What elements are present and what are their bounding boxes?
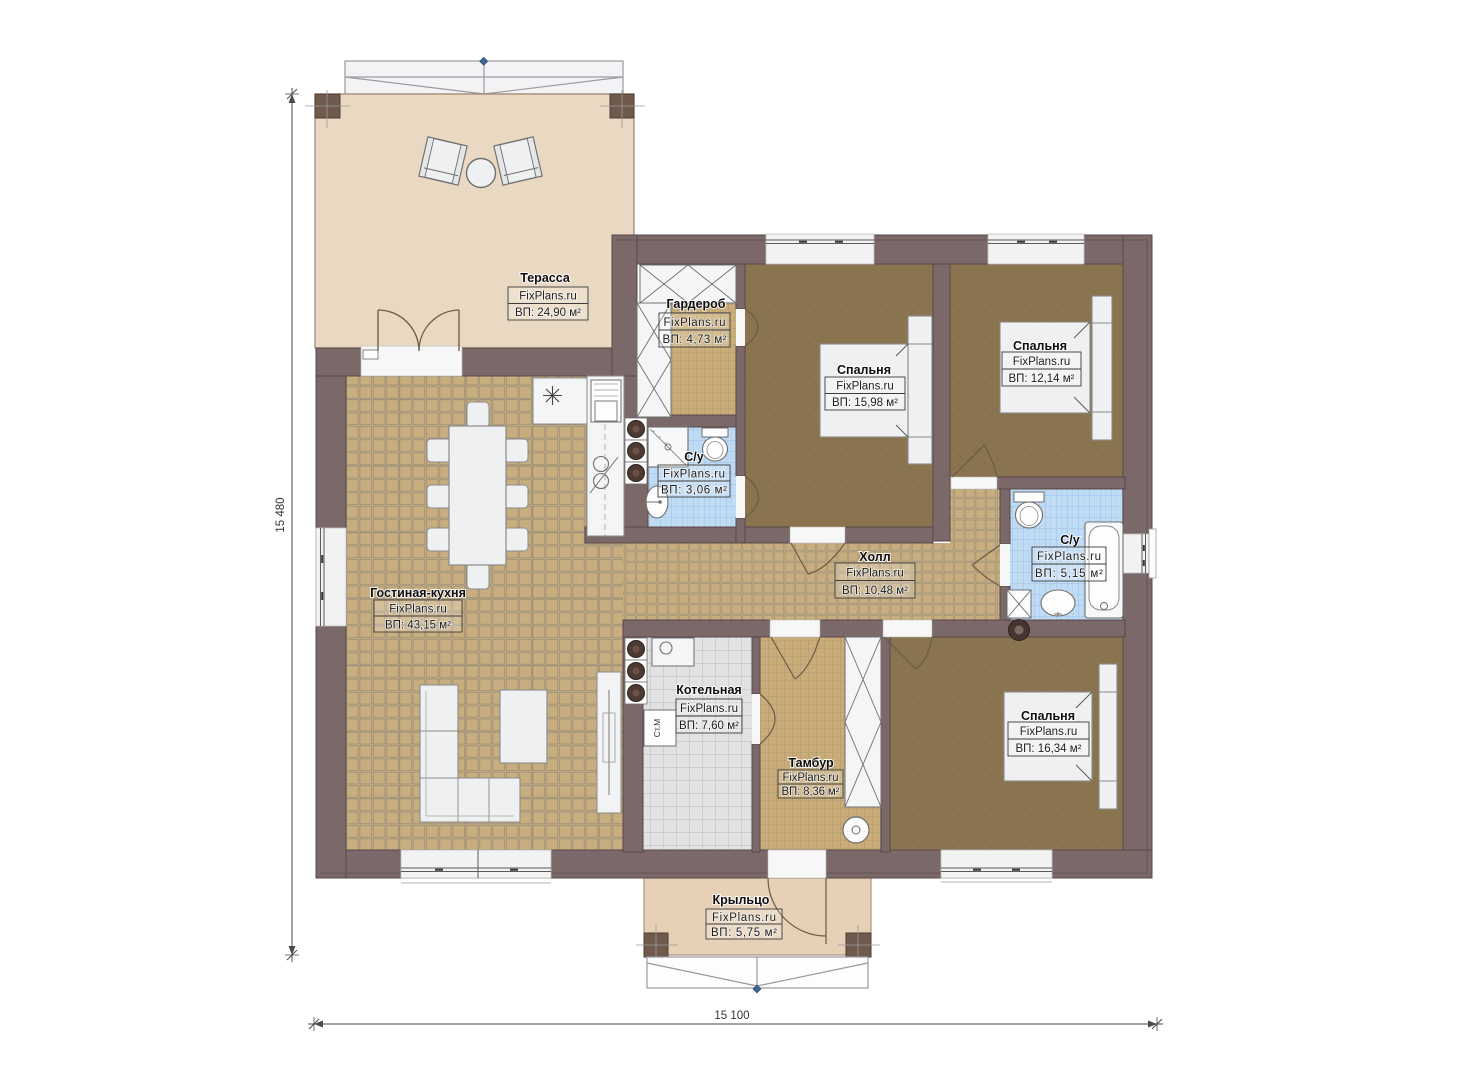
svg-text:С/у: С/у [684, 450, 704, 464]
svg-text:FixPlans.ru: FixPlans.ru [664, 317, 726, 329]
svg-text:FixPlans.ru: FixPlans.ru [680, 703, 738, 715]
svg-text:15 480: 15 480 [275, 497, 287, 532]
svg-text:Спальня: Спальня [1013, 339, 1067, 353]
svg-text:FixPlans.ru: FixPlans.ru [783, 772, 839, 784]
svg-text:ВП: 3,06 м²: ВП: 3,06 м² [661, 485, 727, 497]
svg-text:FixPlans.ru: FixPlans.ru [1020, 726, 1078, 738]
svg-text:Ст.М: Ст.М [652, 719, 662, 738]
svg-text:ВП: 8,36 м²: ВП: 8,36 м² [782, 786, 840, 798]
svg-text:ВП: 24,90 м²: ВП: 24,90 м² [515, 307, 581, 319]
svg-text:ВП: 5,75 м²: ВП: 5,75 м² [711, 927, 777, 939]
svg-text:FixPlans.ru: FixPlans.ru [836, 381, 894, 393]
svg-text:ВП: 4,73 м²: ВП: 4,73 м² [663, 334, 727, 346]
svg-text:Терасса: Терасса [520, 271, 571, 285]
svg-text:ВП: 16,34 м²: ВП: 16,34 м² [1015, 743, 1081, 755]
svg-text:ВП: 7,60 м²: ВП: 7,60 м² [679, 720, 739, 732]
svg-text:Тамбур: Тамбур [788, 756, 834, 770]
svg-text:ВП: 12,14 м²: ВП: 12,14 м² [1008, 373, 1074, 385]
svg-text:Котельная: Котельная [676, 683, 741, 697]
svg-text:FixPlans.ru: FixPlans.ru [663, 469, 725, 481]
svg-text:Гостиная-кухня: Гостиная-кухня [370, 586, 466, 600]
svg-text:Крыльцо: Крыльцо [713, 893, 770, 907]
svg-text:Холл: Холл [859, 550, 890, 564]
svg-text:FixPlans.ru: FixPlans.ru [712, 912, 776, 924]
svg-text:Спальня: Спальня [837, 363, 891, 377]
svg-text:15 100: 15 100 [714, 1010, 749, 1022]
svg-text:Гардероб: Гардероб [666, 297, 725, 311]
svg-text:FixPlans.ru: FixPlans.ru [519, 291, 577, 303]
svg-text:ВП: 10,48 м²: ВП: 10,48 м² [842, 585, 908, 597]
svg-text:FixPlans.ru: FixPlans.ru [389, 604, 447, 616]
svg-text:ВП: 43,15 м²: ВП: 43,15 м² [385, 620, 451, 632]
svg-text:FixPlans.ru: FixPlans.ru [1013, 356, 1071, 368]
svg-text:ВП: 5,15 м²: ВП: 5,15 м² [1035, 568, 1103, 580]
svg-text:С/у: С/у [1060, 533, 1080, 547]
svg-text:Спальня: Спальня [1021, 709, 1075, 723]
svg-text:FixPlans.ru: FixPlans.ru [1037, 551, 1101, 563]
svg-text:FixPlans.ru: FixPlans.ru [846, 568, 904, 580]
svg-text:ВП: 15,98 м²: ВП: 15,98 м² [832, 397, 898, 409]
